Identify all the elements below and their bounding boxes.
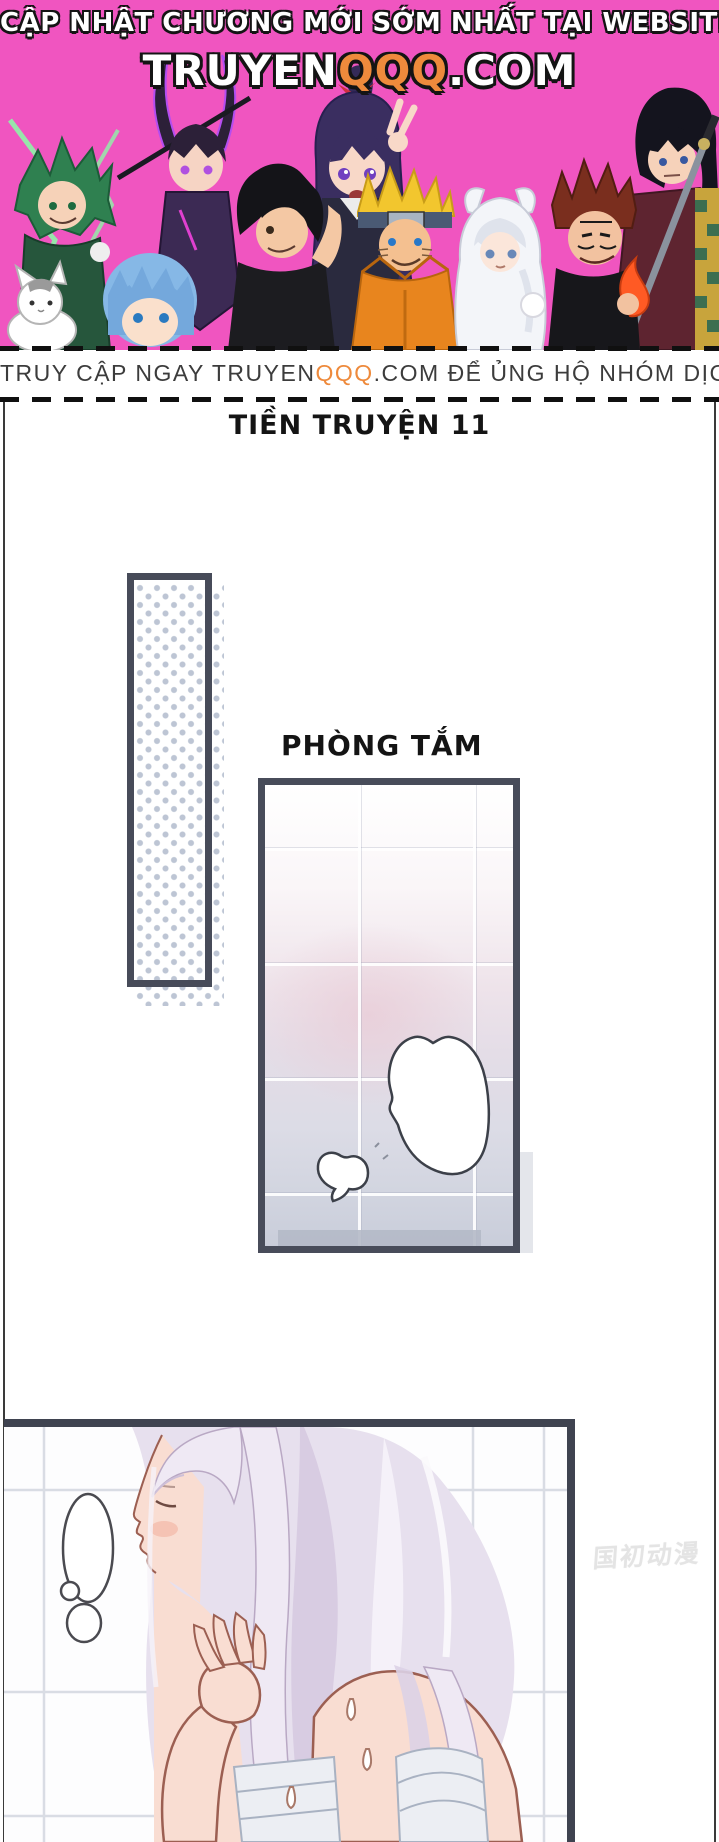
big-steam-bubble — [389, 1037, 489, 1174]
site-ad-banner[interactable]: CẬP NHẬT CHƯƠNG MỚI SỚM NHẤT TẠI WEBSITE… — [0, 0, 719, 350]
page-right-border — [714, 402, 716, 1842]
comic-reader-page: CẬP NHẬT CHƯƠNG MỚI SỚM NHẤT TẠI WEBSITE… — [0, 0, 719, 1842]
bath-scene-panel — [4, 1419, 575, 1842]
blue-hair-boy — [103, 253, 197, 347]
cat-ear-hoodie-girl — [455, 188, 545, 350]
banner-headline: CẬP NHẬT CHƯƠNG MỚI SỚM NHẤT TẠI WEBSITE — [0, 8, 719, 38]
banner-site-url: TRUYENQQQ.COM — [0, 46, 719, 95]
steam-sparkle — [375, 1143, 388, 1159]
chapter-title: TIỀN TRUYỆN 11 — [0, 410, 719, 441]
bathing-character-illustration — [4, 1427, 567, 1842]
small-steam-bubble — [318, 1153, 368, 1201]
scanlator-watermark: 国初动漫 — [592, 1533, 714, 1575]
blush — [150, 1521, 178, 1537]
dashed-divider-bottom — [0, 397, 719, 402]
steam-bubbles — [265, 785, 513, 1246]
promo-strip: TRUY CẬP NGAY TRUYENQQQ.COM ĐỂ ỦNG HỘ NH… — [0, 350, 719, 397]
tub-edge — [278, 1230, 481, 1246]
bathroom-panel — [258, 778, 520, 1253]
soap-bubbles — [61, 1494, 113, 1642]
panel-shadow — [520, 1152, 533, 1253]
halftone-frame — [127, 573, 212, 987]
bandages-arm — [396, 1748, 488, 1842]
bathroom-label: PHÒNG TẮM — [281, 729, 483, 762]
